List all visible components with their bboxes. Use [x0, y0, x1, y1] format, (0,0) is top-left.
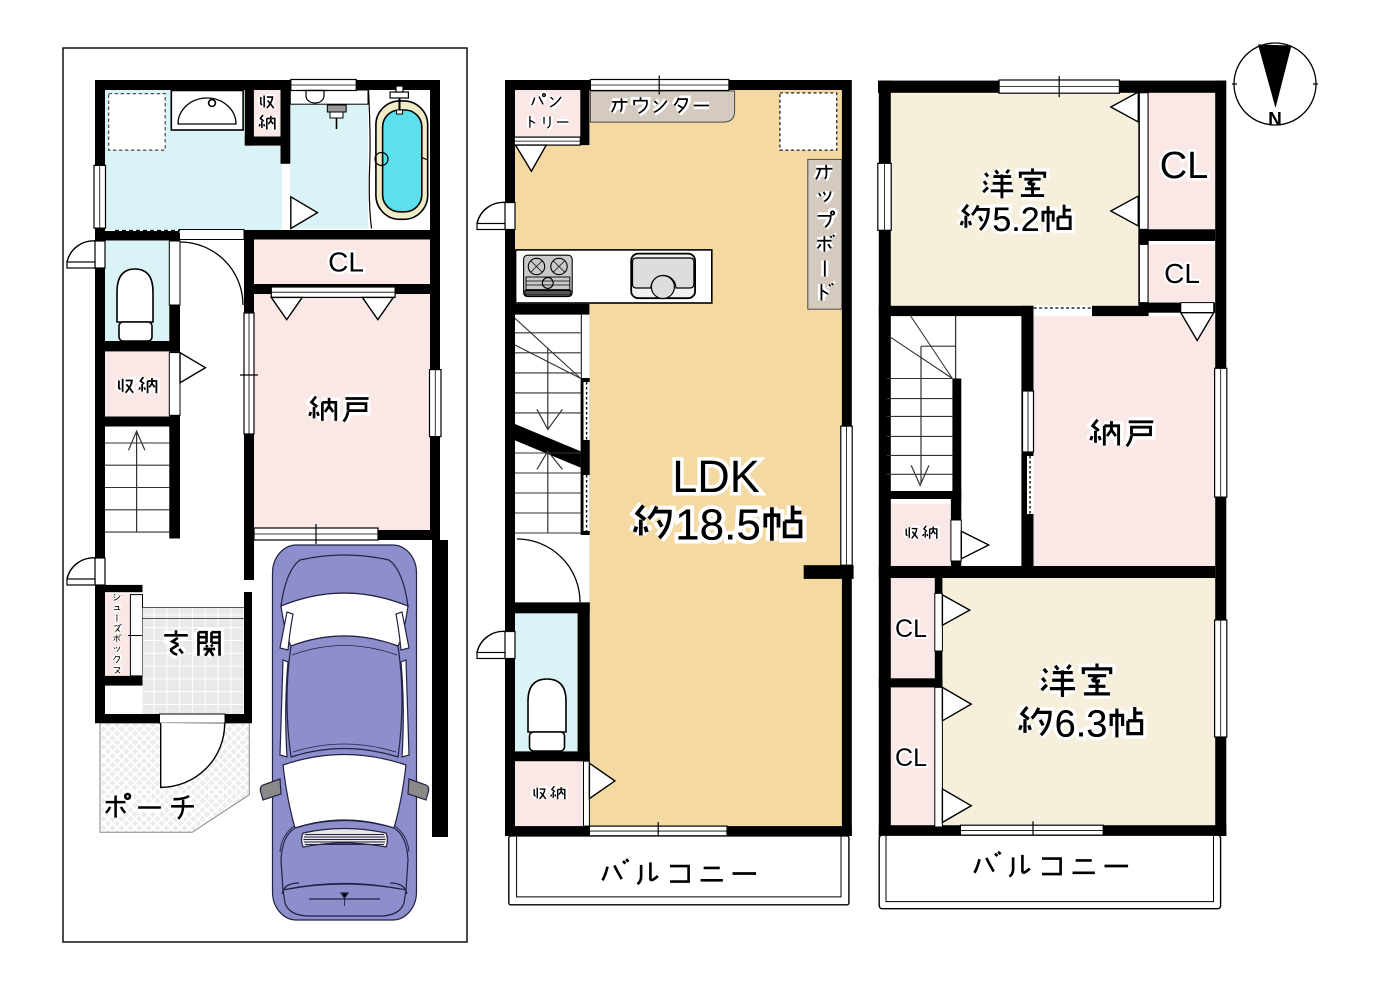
svg-text:CL: CL [328, 247, 364, 278]
svg-text:CL: CL [1160, 145, 1209, 187]
svg-text:5.2: 5.2 [992, 201, 1039, 239]
svg-text:18.5: 18.5 [675, 501, 761, 550]
svg-text:N: N [1268, 110, 1282, 131]
svg-text:6.3: 6.3 [1055, 704, 1108, 746]
svg-text:LDK: LDK [672, 451, 760, 502]
svg-text:CL: CL [1164, 258, 1200, 289]
svg-text:CL: CL [895, 615, 927, 643]
svg-text:CL: CL [895, 744, 927, 772]
